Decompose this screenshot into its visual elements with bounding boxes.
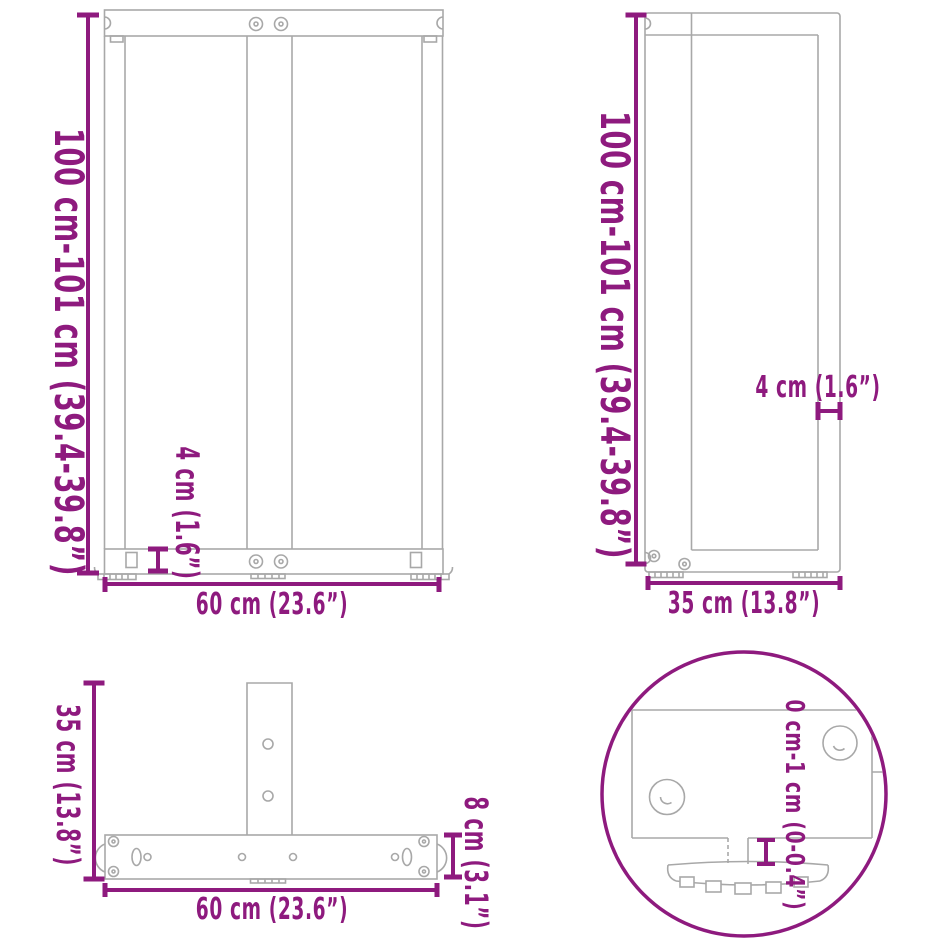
front-view-drawing [77, 10, 453, 592]
detail-adjustable-range-label: 0 cm-1 cm (0-0.4”) [781, 700, 807, 911]
front-height-dimension-label: 100 cm-101 cm (39.4-39.8”) [48, 128, 88, 576]
front-foot-height-dimension-label: 4 cm (1.6”) [171, 446, 203, 579]
dimension-diagram: 100 cm-101 cm (39.4-39.8”) 4 cm (1.6”) 6… [0, 0, 947, 947]
side-depth-dimension-label: 35 cm (13.8”) [668, 589, 820, 619]
side-view-drawing [626, 13, 841, 590]
top-bar-height-dimension-label: 8 cm (3.1”) [460, 796, 492, 929]
side-profile-dimension-label: 4 cm (1.6”) [755, 373, 880, 403]
detail-view-drawing [602, 652, 890, 936]
top-width-dimension-label: 60 cm (23.6”) [196, 895, 348, 925]
side-height-dimension-label: 100 cm-101 cm (39.4-39.8”) [594, 111, 634, 559]
top-view-drawing [84, 683, 463, 897]
front-width-dimension-label: 60 cm (23.6”) [196, 590, 348, 620]
top-depth-dimension-label: 35 cm (13.8”) [52, 704, 84, 866]
